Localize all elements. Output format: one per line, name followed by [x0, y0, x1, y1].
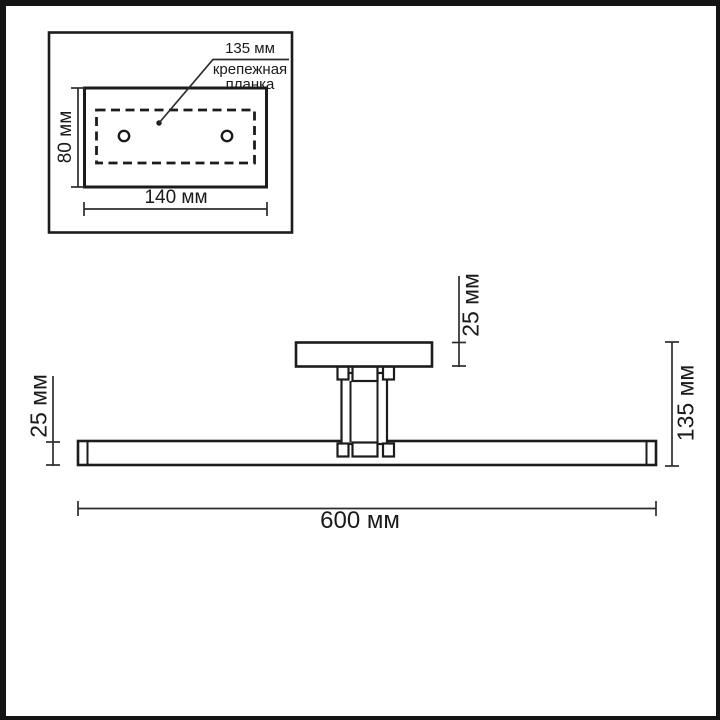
callout-plate-name-line1: крепежная	[213, 62, 287, 77]
callout-plate-name-line2: планка	[213, 77, 287, 92]
plate-thickness-label: 25 мм	[458, 273, 485, 337]
overall-length-label: 600 мм	[320, 507, 400, 535]
bar-thickness-label: 25 мм	[26, 374, 53, 438]
plate-callout: 135 мм крепежная планка	[213, 38, 287, 92]
inset-height-label: 80 мм	[55, 111, 77, 164]
labels-layer: 135 мм крепежная планка 80 мм 140 мм 25 …	[0, 0, 720, 720]
diagram-canvas: 135 мм крепежная планка 80 мм 140 мм 25 …	[0, 0, 720, 720]
inset-width-label: 140 мм	[144, 187, 207, 209]
callout-hole-spacing-label: 135 мм	[213, 38, 287, 59]
overall-height-label: 135 мм	[673, 365, 700, 441]
